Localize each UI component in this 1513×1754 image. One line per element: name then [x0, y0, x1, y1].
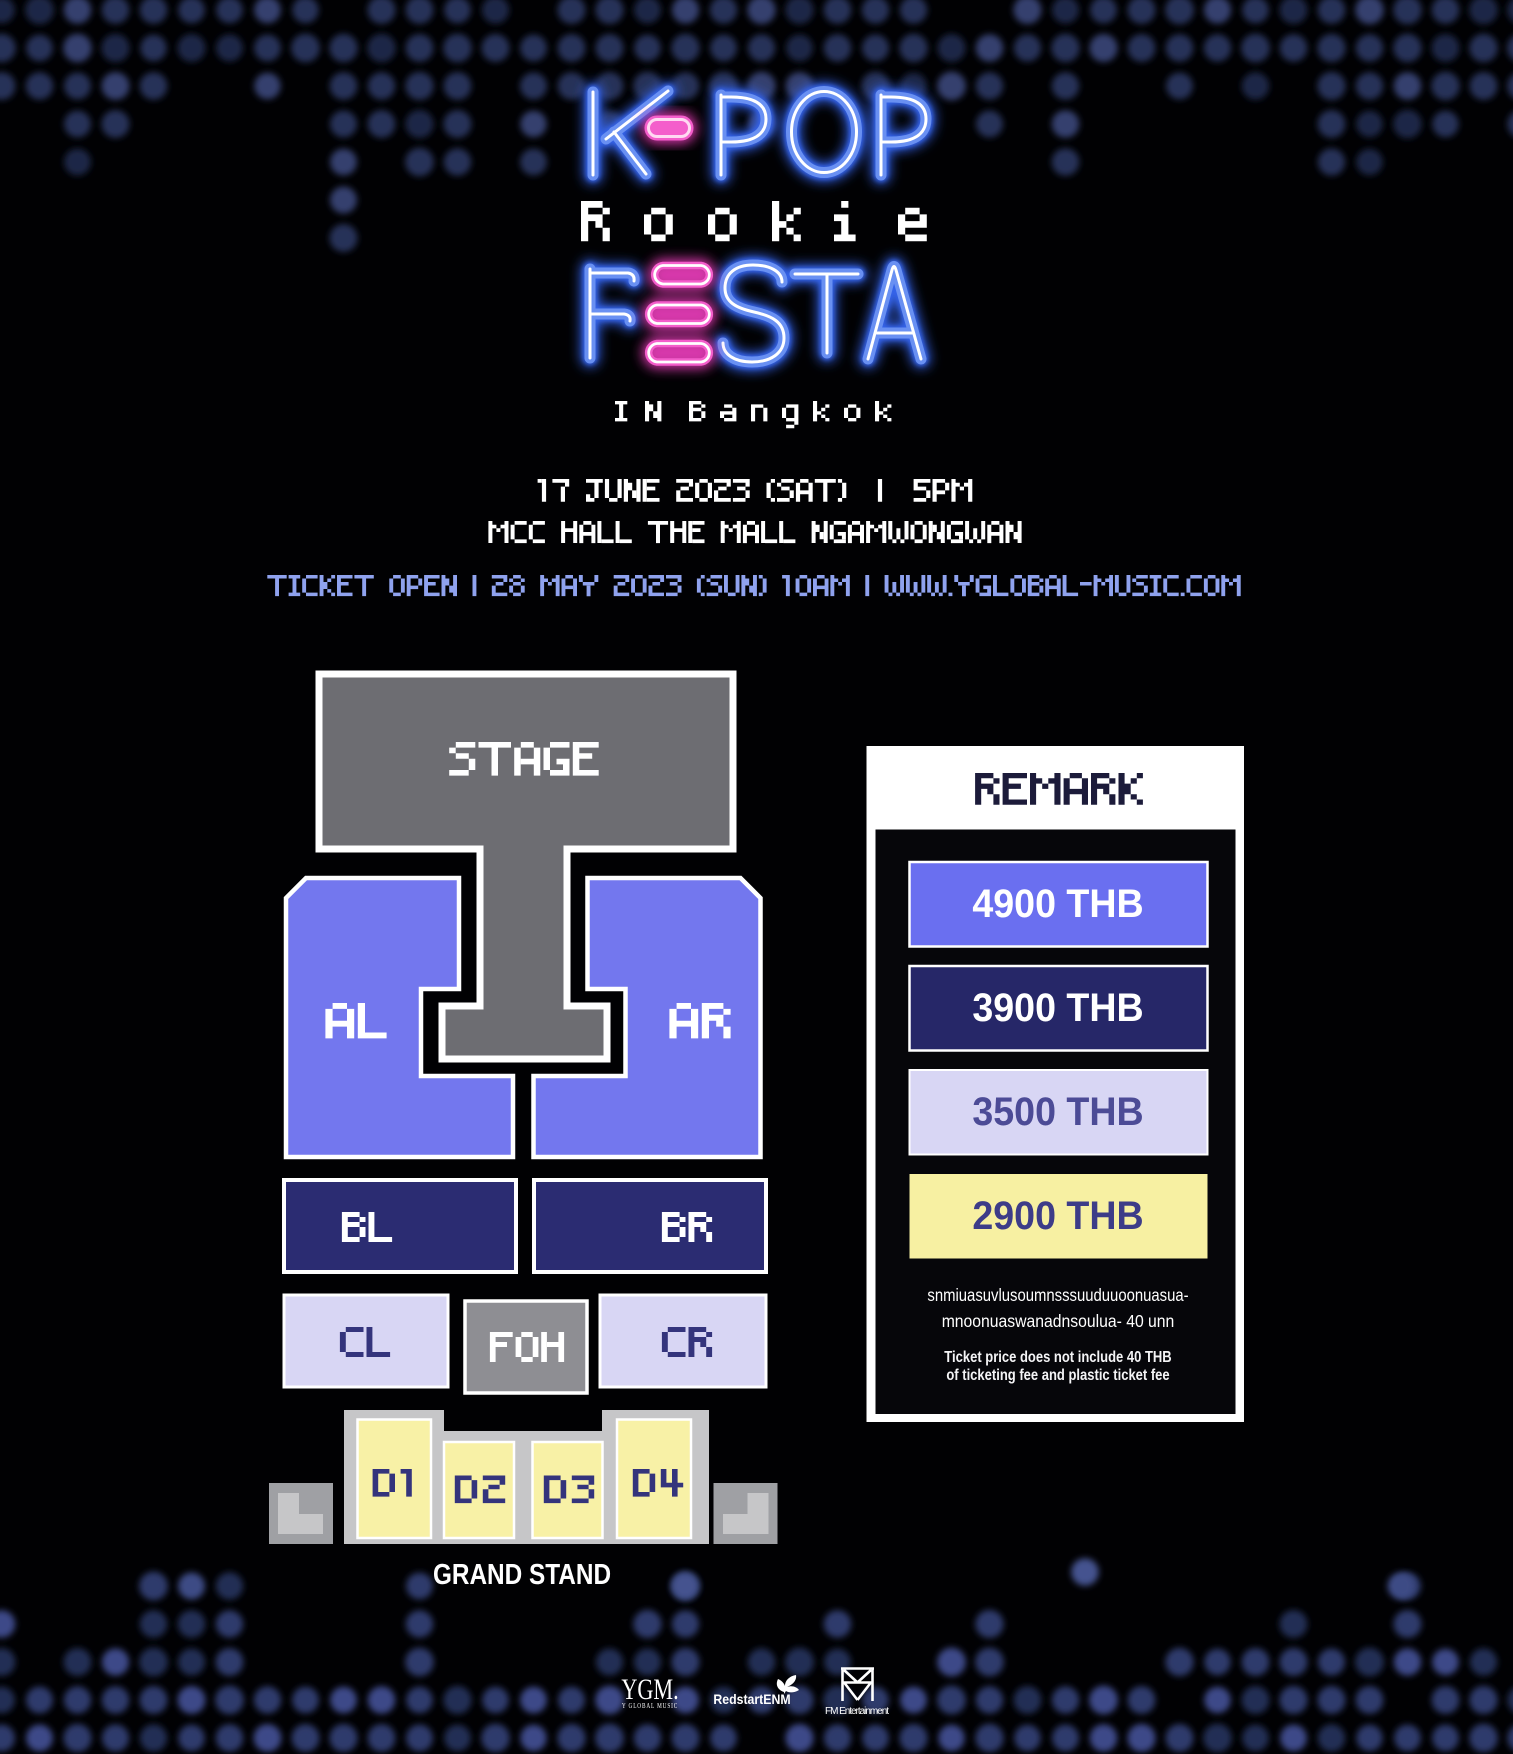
svg-text:GRAND STAND: GRAND STAND: [433, 1558, 611, 1590]
svg-text:Ticket price does not include: Ticket price does not include 40 THB: [944, 1349, 1171, 1366]
svg-text:Y GLOBAL MUSIC: Y GLOBAL MUSIC: [622, 1704, 678, 1711]
svg-text:3500 THB: 3500 THB: [972, 1090, 1143, 1134]
svg-text:snmiuasuvlusoumnsssuuduuoonuas: snmiuasuvlusoumnsssuuduuoonuasua-: [927, 1286, 1188, 1305]
svg-text:4900 THB: 4900 THB: [972, 882, 1143, 926]
svg-text:2900 THB: 2900 THB: [972, 1194, 1143, 1238]
svg-text:of ticketing fee and plastic t: of ticketing fee and plastic ticket fee: [946, 1367, 1169, 1384]
svg-text:YGM.: YGM.: [621, 1672, 678, 1706]
svg-text:FM Entertainment: FM Entertainment: [825, 1706, 889, 1717]
svg-text:3900 THB: 3900 THB: [972, 986, 1143, 1030]
svg-text:RedstartENM: RedstartENM: [713, 1691, 790, 1707]
svg-text:mnoonuaswanadnsoulua- 40 unn: mnoonuaswanadnsoulua- 40 unn: [942, 1311, 1175, 1331]
